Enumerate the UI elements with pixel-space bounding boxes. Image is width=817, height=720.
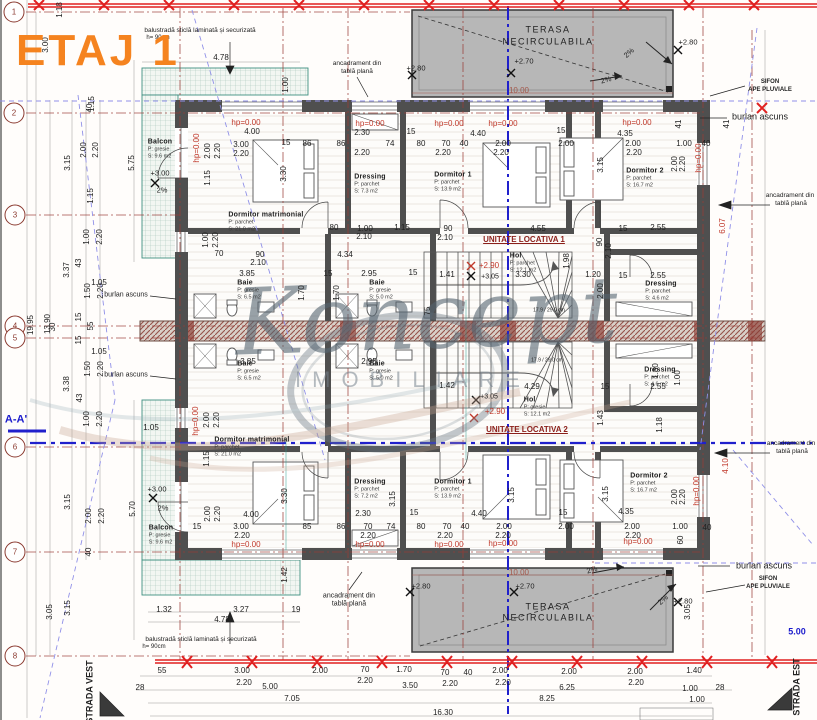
annotation-label: STRADA EST bbox=[793, 658, 802, 715]
annotation-label: SIFON bbox=[761, 79, 779, 85]
annotation-label: STRADA VEST bbox=[86, 660, 95, 720]
annotation-label: TERASA bbox=[525, 603, 570, 612]
annotation-label: +2.80 bbox=[679, 38, 698, 46]
annotation-label: burlan ascuns bbox=[104, 372, 148, 379]
annotation-label: h= 90cm bbox=[142, 644, 165, 650]
floor-title: ETAJ 1 bbox=[16, 26, 180, 76]
annotation-label: +2.70 bbox=[515, 57, 534, 65]
annotation-label: 2% bbox=[586, 565, 598, 575]
annotation-label: NECIRCULABILA bbox=[502, 38, 593, 47]
annotation-label: SIFON bbox=[759, 576, 777, 582]
annotation-label: ancadrament din bbox=[323, 593, 375, 600]
annotation-label: tablă plană bbox=[775, 201, 807, 208]
floor-plan-sheet: ETAJ 1 Koncept IMOBILIARE 12345678 Balco… bbox=[0, 0, 817, 720]
annotation-label: balustradă sticlă laminată și securizată bbox=[145, 637, 256, 644]
annotation-label: tablă plană bbox=[332, 601, 366, 608]
annotation-label: ancadrament din bbox=[766, 193, 814, 200]
annotation-label: burlan ascuns bbox=[104, 292, 148, 299]
annotation-label: +3.00 bbox=[148, 485, 167, 493]
annotation-label: tablă plană bbox=[341, 69, 373, 76]
annotation-label: +2.80 bbox=[407, 64, 426, 72]
annotation-label: 2% bbox=[600, 75, 612, 85]
annotations-layer: balustradă sticlă laminată și securizată… bbox=[0, 0, 817, 720]
annotation-label: ancadrament din bbox=[333, 61, 381, 68]
annotation-label: 5.00 bbox=[788, 628, 806, 637]
annotation-label: +3.05 bbox=[480, 394, 498, 401]
annotation-label: TERASA bbox=[525, 26, 570, 35]
annotation-label: 2% bbox=[622, 47, 635, 60]
annotation-label: +3.05 bbox=[481, 274, 499, 281]
annotation-label: NECIRCULABILA bbox=[502, 614, 593, 623]
annotation-label: +2.70 bbox=[516, 582, 535, 590]
annotation-label: APE PLUVIALE bbox=[748, 87, 792, 93]
annotation-label: burlan ascuns bbox=[732, 113, 788, 122]
annotation-label: tablă plană bbox=[776, 449, 808, 456]
annotation-label: 2% bbox=[656, 594, 669, 607]
annotation-label: APE PLUVIALE bbox=[746, 584, 790, 590]
annotation-label: burlan ascuns bbox=[736, 562, 792, 571]
annotation-label: +2.80 bbox=[412, 582, 431, 590]
annotation-label: +3.00 bbox=[151, 169, 170, 177]
annotation-label: 2% bbox=[157, 186, 168, 194]
annotation-label: +2.80 bbox=[674, 597, 693, 605]
annotation-label: ancadrament din bbox=[767, 441, 815, 448]
annotation-label: A-A' bbox=[5, 415, 27, 426]
annotation-label: 2% bbox=[158, 504, 169, 512]
